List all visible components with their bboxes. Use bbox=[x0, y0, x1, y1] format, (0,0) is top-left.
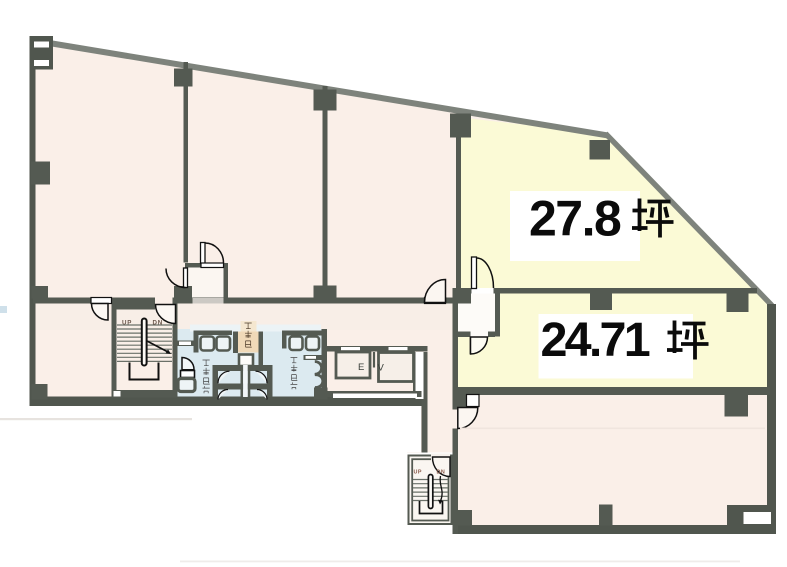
svg-text:UP: UP bbox=[122, 320, 132, 327]
svg-text:V: V bbox=[378, 363, 385, 374]
svg-text:DN: DN bbox=[153, 320, 164, 327]
svg-text:27.8: 27.8 bbox=[529, 191, 621, 247]
svg-text:DN: DN bbox=[437, 470, 446, 476]
svg-text:UP: UP bbox=[414, 470, 423, 476]
svg-text:24.71: 24.71 bbox=[541, 313, 650, 367]
svg-text:E: E bbox=[358, 362, 364, 373]
